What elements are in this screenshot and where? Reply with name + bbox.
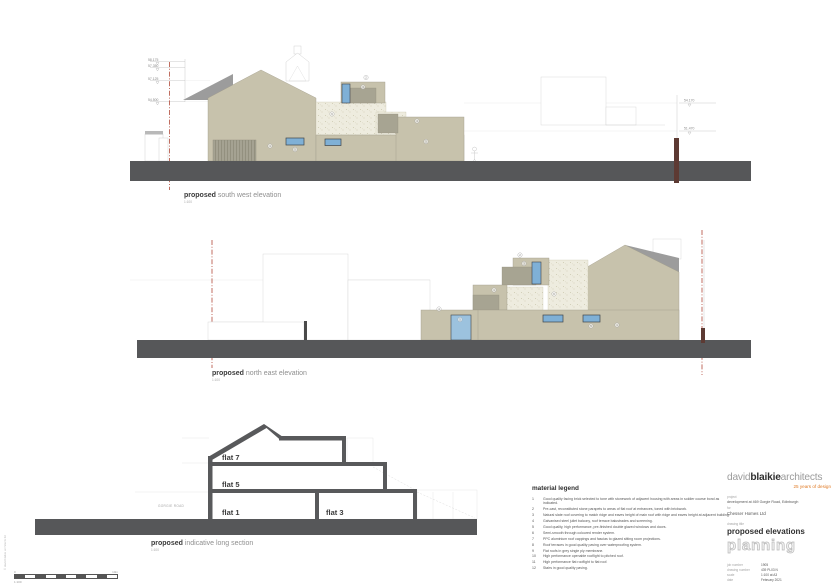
legend-item: 5Good quality, high performance, pre-fin… xyxy=(532,525,730,530)
window-2 xyxy=(325,139,341,146)
south-west-elevation-drawing: 58.175 57.350 57.125 54.500 54.170 51.47… xyxy=(128,42,758,192)
legend-item: 1Good quality facing brick selected to t… xyxy=(532,497,730,506)
flat-roof xyxy=(279,436,346,441)
flat3-right-wall xyxy=(413,489,417,519)
legend-item: 7PPC aluminium roof cappings and fascias… xyxy=(532,537,730,542)
status-stamp: planning xyxy=(727,537,831,554)
scale-bar-segments xyxy=(14,574,118,579)
caption-scale: 1:100 xyxy=(151,549,253,553)
flat-1-label: flat 1 xyxy=(222,508,240,517)
fence-post xyxy=(304,321,307,341)
caption-bold: proposed xyxy=(184,192,216,199)
client-name: Chesser Homes Ltd xyxy=(727,511,831,516)
caption-scale: 1:100 xyxy=(212,379,307,383)
drawing-title-label: drawing title xyxy=(727,522,831,526)
material-legend: material legend 1Good quality facing bri… xyxy=(532,485,730,572)
firm-tagline: 25 years of design xyxy=(727,484,831,489)
lower-wall xyxy=(473,310,679,340)
legend-title: material legend xyxy=(532,485,730,492)
level-54500: 54.500 xyxy=(148,98,158,102)
boundary-post xyxy=(701,328,705,343)
caption-rest: indicative long section xyxy=(183,540,253,547)
caption-rest: south west elevation xyxy=(216,192,281,199)
project-label: project xyxy=(727,495,831,499)
caption-scale: 1:100 xyxy=(184,201,281,205)
drawing-title: proposed elevations xyxy=(727,527,831,536)
level-54170: 54.170 xyxy=(684,99,694,103)
window-1 xyxy=(543,315,563,322)
building-sw xyxy=(208,70,464,161)
flat7-floor xyxy=(208,462,387,466)
outline-outbuildings xyxy=(145,131,168,161)
north-east-elevation-drawing: 4 5 1 2 3 6 5 1 xyxy=(128,225,758,380)
tall-window xyxy=(342,84,350,103)
legend-item: 2Pre-cast, reconstituted stone parapets … xyxy=(532,507,730,512)
level-57350: 57.350 xyxy=(148,64,158,68)
road-label: GORGIE ROAD xyxy=(158,504,185,508)
adjacent-buildings-outline xyxy=(208,254,430,340)
window-2 xyxy=(583,315,600,322)
legend-item: 4Galvanised steel juliet balcony, roof t… xyxy=(532,519,730,524)
roof-terrace-mass xyxy=(378,114,398,133)
graphic-scale-bar: 0 10m 1:100 xyxy=(14,570,118,584)
adjacent-buildings-outline xyxy=(541,77,665,125)
level-57125: 57.125 xyxy=(148,77,158,81)
scale-ten: 10m xyxy=(112,570,118,574)
legend-item: 12Stairs in good quality paving. xyxy=(532,566,730,571)
for-label: for xyxy=(727,506,831,510)
project-name: development at 469 Gorgie Road, Edinburg… xyxy=(727,500,831,504)
level-51470: 51.470 xyxy=(684,127,694,131)
faint-construction-lines xyxy=(135,438,477,519)
admin-table: job number1905 drawing number439 PL03 N … xyxy=(727,563,831,584)
right-block-wall xyxy=(396,117,464,161)
legend-item: 11High performance flat rooflight to fla… xyxy=(532,560,730,565)
ne-elevation-caption: proposed north east elevation 1:100 xyxy=(212,370,307,382)
legend-item: 8Roof terraces in good quality paving ov… xyxy=(532,543,730,548)
date-row: dateFebruary 2021 xyxy=(727,578,831,583)
stone-panel-a xyxy=(316,102,386,135)
sw-elevation-caption: proposed south west elevation 1:100 xyxy=(184,192,281,204)
flat5-right-wall xyxy=(383,462,387,492)
flat-7-label: flat 7 xyxy=(222,453,240,462)
louvred-screen xyxy=(213,140,256,161)
adjacent-gable-outline xyxy=(286,46,309,81)
caption-bold: proposed xyxy=(212,370,244,377)
ground-band xyxy=(137,340,751,358)
caption-bold: proposed xyxy=(151,540,183,547)
balcony-screen-mid xyxy=(473,295,499,310)
section-caption: proposed indicative long section 1:100 xyxy=(151,540,253,552)
scale-zero: 0 xyxy=(14,570,16,574)
roof-slope xyxy=(208,424,283,460)
tall-window xyxy=(532,262,541,284)
copyright-edge-note: © david blaikie architects ltd xyxy=(3,535,7,570)
ground-band xyxy=(130,161,751,181)
caption-rest: north east elevation xyxy=(244,370,307,377)
ground-band xyxy=(35,519,477,535)
boundary-post xyxy=(674,138,679,183)
building-ne xyxy=(421,239,681,340)
stone-panel-c xyxy=(506,287,543,312)
flat5-floor xyxy=(208,489,417,493)
drawing-sheet: 58.175 57.350 57.125 54.500 54.170 51.47… xyxy=(0,0,832,588)
legend-item: 10High performance openable rooflight to… xyxy=(532,554,730,559)
section-structure xyxy=(208,424,417,519)
stone-panel-d xyxy=(548,260,588,312)
legend-item: 3Natural slate roof covering to match ri… xyxy=(532,513,730,518)
balcony-screen-upper xyxy=(502,267,536,285)
flat-3-label: flat 3 xyxy=(326,508,344,517)
party-wall xyxy=(315,493,319,519)
flat7-right-wall xyxy=(342,436,346,466)
legend-item: 9Flat roofs in grey single ply membrane. xyxy=(532,549,730,554)
window-1 xyxy=(286,138,304,145)
long-section-drawing: flat 7 flat 5 flat 1 flat 3 GORGIE ROAD xyxy=(15,415,495,560)
scale-ratio: 1:100 xyxy=(14,580,118,584)
flat-5-label: flat 5 xyxy=(222,480,240,489)
legend-item: 6Semi-smooth through coloured render sys… xyxy=(532,531,730,536)
level-58175: 58.175 xyxy=(148,58,158,62)
title-block: davidblaikiearchitects 25 years of desig… xyxy=(727,472,831,588)
firm-name: davidblaikiearchitects xyxy=(727,472,831,483)
